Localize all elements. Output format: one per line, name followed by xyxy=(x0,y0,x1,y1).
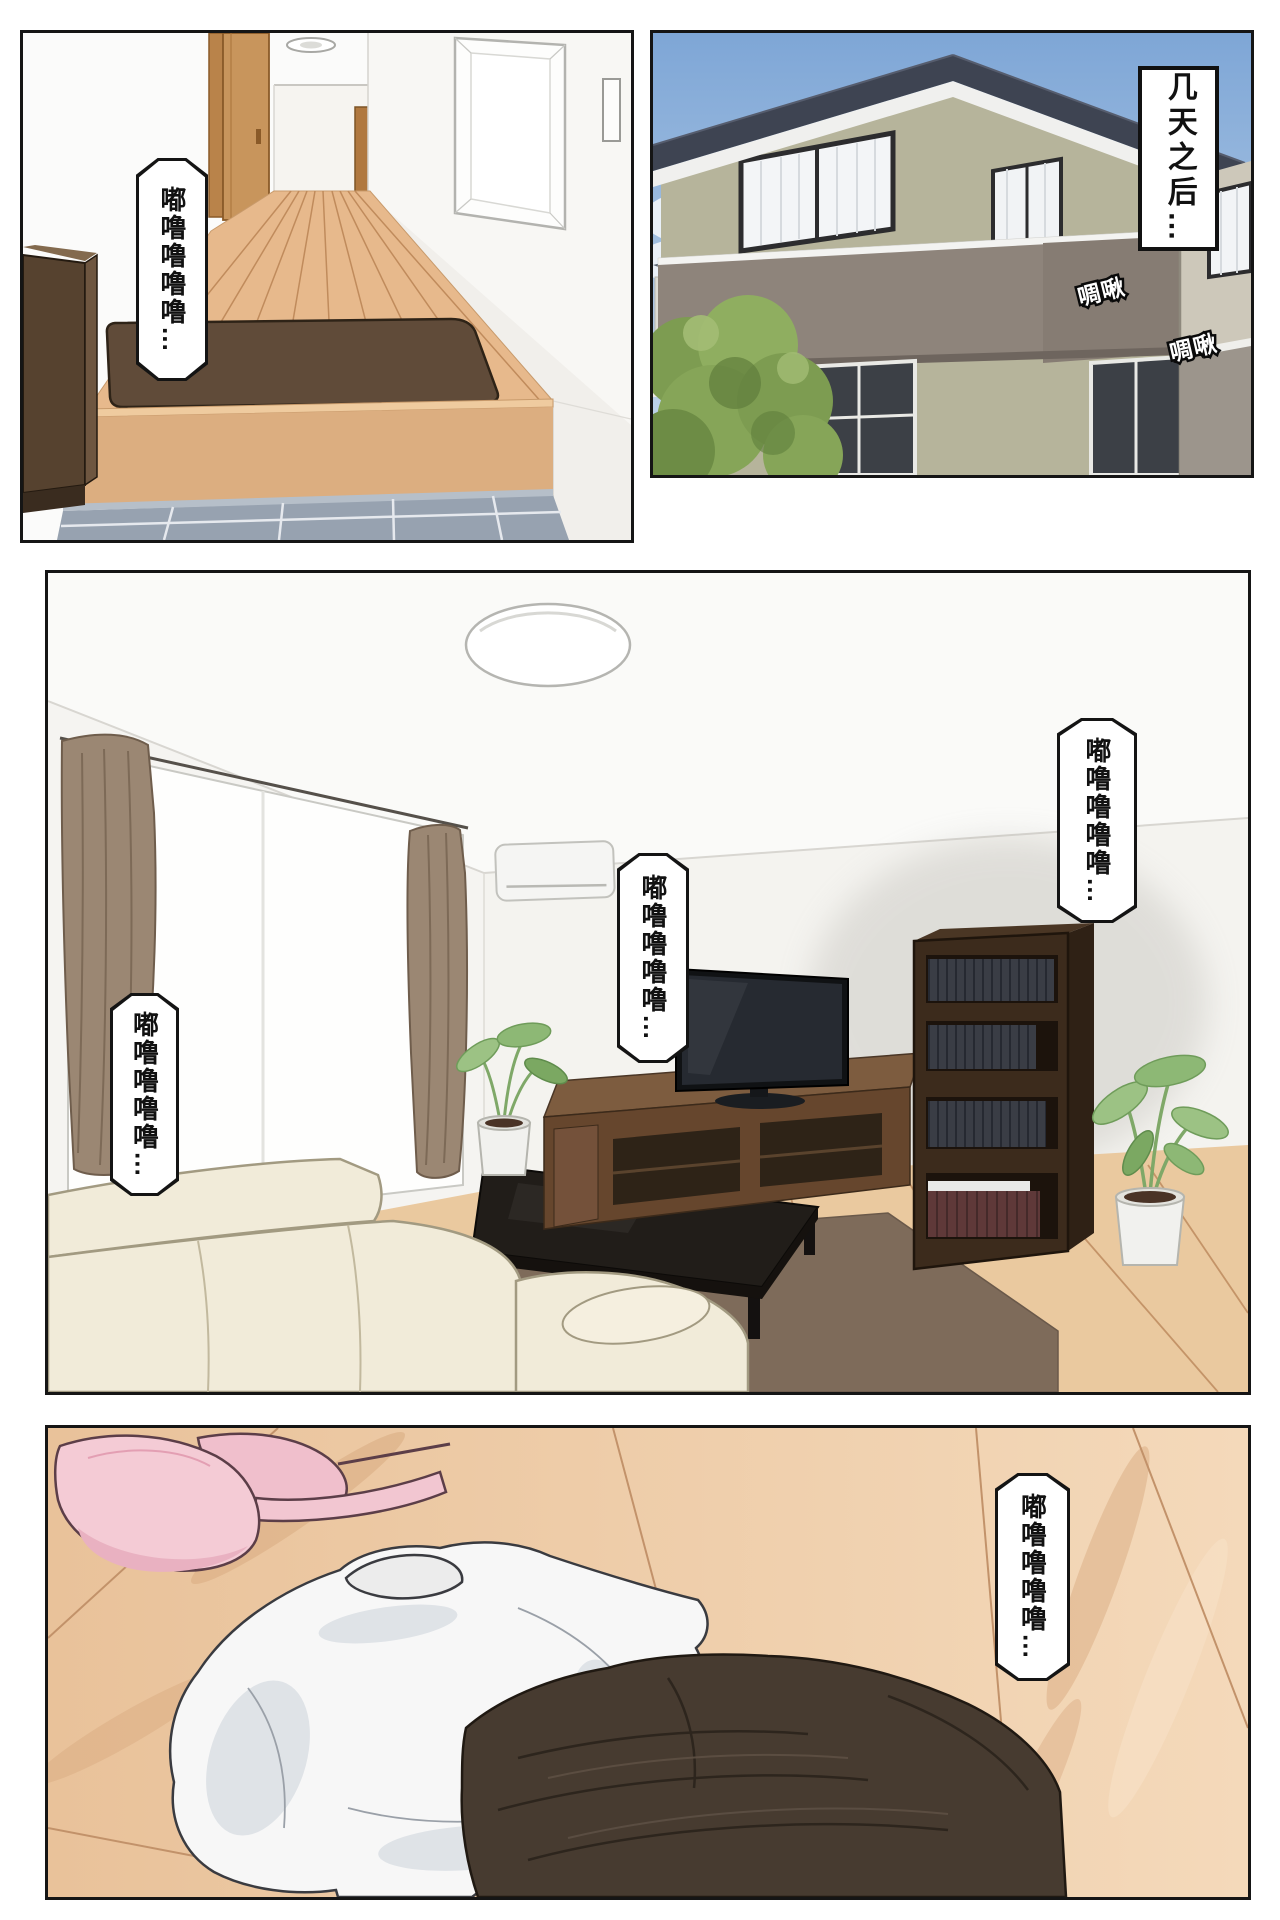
first-floor-window-2 xyxy=(1091,357,1181,475)
panel-hallway: 嘟噜噜噜噜… xyxy=(20,30,634,543)
comic-page: 嘟噜噜噜噜… xyxy=(0,0,1280,1920)
speech-bubble: 嘟噜噜噜噜… xyxy=(110,993,179,1196)
panel-floor-clothes: 嘟噜噜噜噜… xyxy=(45,1425,1251,1900)
hall-window xyxy=(455,38,565,229)
bubble-text: 嘟噜噜噜噜… xyxy=(1083,737,1111,905)
far-door xyxy=(355,107,369,193)
panel-living-room: 嘟噜噜噜噜… 嘟噜噜噜噜… 嘟噜噜噜噜… xyxy=(45,570,1251,1395)
shoe-cabinet xyxy=(23,245,97,513)
caption-box: 几天之后… xyxy=(1138,66,1219,251)
sliding-door xyxy=(209,33,269,220)
picture-frame xyxy=(603,79,620,141)
bookshelf xyxy=(914,923,1094,1269)
door-handle xyxy=(256,129,261,144)
corridor-back xyxy=(274,85,370,193)
ceiling-light-small xyxy=(287,38,335,52)
speech-bubble: 嘟噜噜噜噜… xyxy=(995,1473,1070,1681)
bubble-text: 嘟噜噜噜噜… xyxy=(1018,1493,1046,1661)
ceiling-light xyxy=(466,604,630,686)
panel-exterior: 几天之后… 啁啾 啁啾 xyxy=(650,30,1254,478)
air-conditioner xyxy=(495,841,615,901)
bubble-text: 嘟噜噜噜噜… xyxy=(639,874,667,1042)
speech-bubble: 嘟噜噜噜噜… xyxy=(1057,718,1137,923)
hallway-illustration xyxy=(23,33,631,540)
caption-text: 几天之后… xyxy=(1162,71,1194,246)
genkan-step xyxy=(85,399,553,505)
bubble-text: 嘟噜噜噜噜… xyxy=(158,186,186,354)
bubble-text: 嘟噜噜噜噜… xyxy=(130,1011,158,1179)
speech-bubble: 嘟噜噜噜噜… xyxy=(617,853,689,1063)
curtain-right xyxy=(407,825,467,1178)
speech-bubble: 嘟噜噜噜噜… xyxy=(136,158,208,381)
